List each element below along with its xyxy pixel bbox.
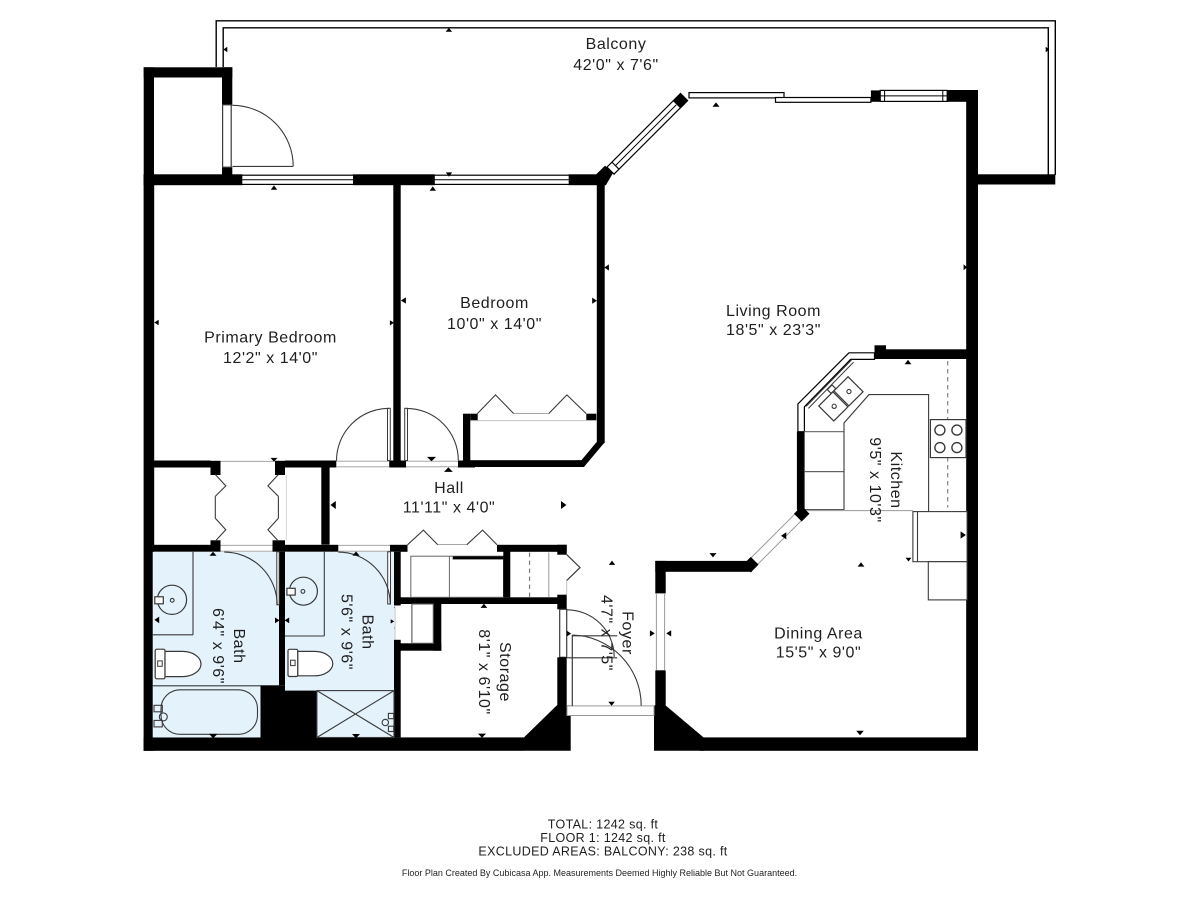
- svg-text:Bath: Bath: [359, 614, 376, 649]
- svg-text:TOTAL: 1242 sq. ft: TOTAL: 1242 sq. ft: [548, 818, 659, 832]
- svg-text:FLOOR 1: 1242 sq. ft: FLOOR 1: 1242 sq. ft: [540, 831, 666, 845]
- svg-text:Foyer: Foyer: [619, 611, 636, 655]
- svg-text:10'0" x 14'0": 10'0" x 14'0": [447, 316, 542, 333]
- svg-text:Living Room: Living Room: [726, 303, 821, 320]
- svg-text:12'2" x 14'0": 12'2" x 14'0": [223, 350, 318, 367]
- svg-text:4'7" x 7'5": 4'7" x 7'5": [598, 595, 615, 671]
- svg-text:8'1" x 6'10": 8'1" x 6'10": [475, 629, 492, 714]
- svg-text:11'11" x 4'0": 11'11" x 4'0": [403, 499, 496, 516]
- svg-text:Bedroom: Bedroom: [460, 295, 529, 312]
- svg-text:42'0" x 7'6": 42'0" x 7'6": [573, 57, 658, 74]
- svg-text:Dining Area: Dining Area: [774, 625, 863, 642]
- svg-text:Balcony: Balcony: [586, 36, 647, 53]
- svg-text:15'5" x 9'0": 15'5" x 9'0": [776, 645, 861, 662]
- svg-text:Primary Bedroom: Primary Bedroom: [204, 330, 337, 347]
- svg-text:Kitchen: Kitchen: [887, 451, 904, 508]
- svg-text:6'4" x 9'6": 6'4" x 9'6": [209, 608, 226, 684]
- svg-text:18'5" x 23'3": 18'5" x 23'3": [726, 322, 821, 339]
- svg-text:Hall: Hall: [434, 480, 464, 497]
- svg-text:9'5" x 10'3": 9'5" x 10'3": [866, 437, 883, 522]
- svg-text:EXCLUDED AREAS: BALCONY: 238 s: EXCLUDED AREAS: BALCONY: 238 sq. ft: [478, 844, 727, 858]
- svg-text:Storage: Storage: [496, 642, 513, 702]
- svg-text:5'6" x 9'6": 5'6" x 9'6": [338, 594, 355, 670]
- svg-text:Floor Plan Created By Cubicasa: Floor Plan Created By Cubicasa App. Meas…: [402, 868, 797, 878]
- svg-text:Bath: Bath: [230, 628, 247, 663]
